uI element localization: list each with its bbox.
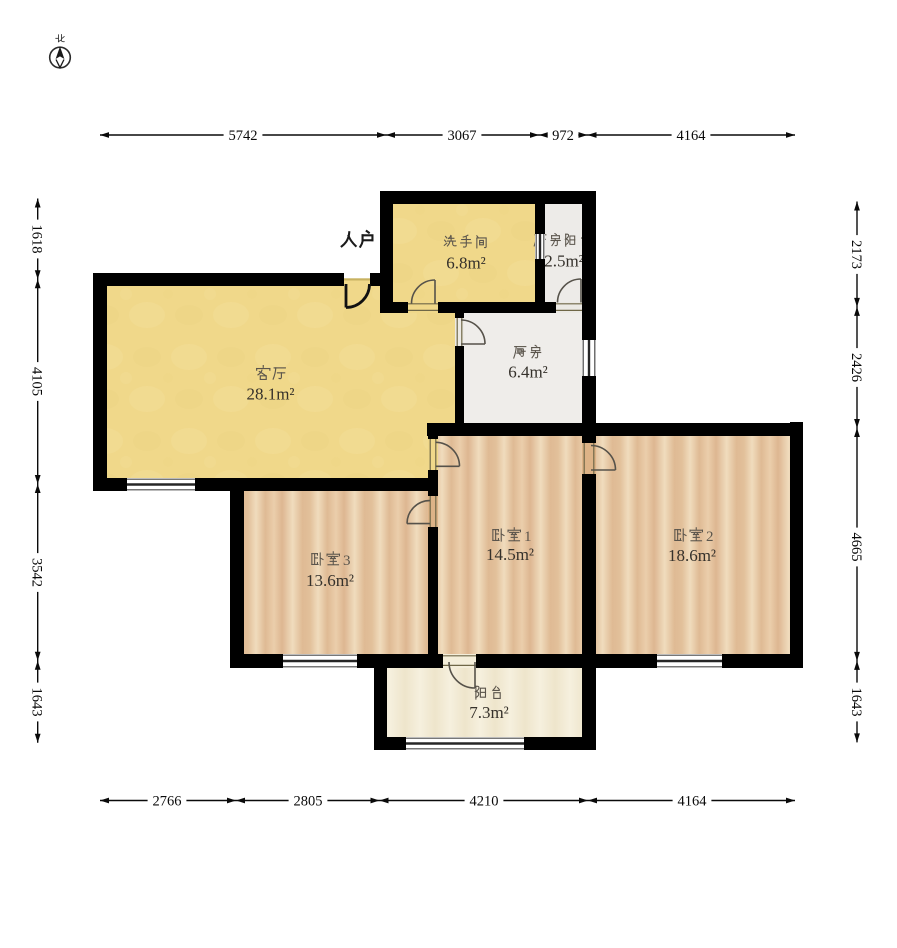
svg-text:14.5m²: 14.5m² <box>486 545 534 564</box>
svg-text:1643: 1643 <box>29 688 45 717</box>
svg-text:3067: 3067 <box>448 128 477 144</box>
svg-text:4210: 4210 <box>470 794 499 810</box>
svg-text:2173: 2173 <box>848 240 864 269</box>
svg-text:2.5m²: 2.5m² <box>544 252 584 271</box>
svg-text:2766: 2766 <box>153 794 182 810</box>
svg-text:2: 2 <box>706 529 714 545</box>
svg-text:4105: 4105 <box>29 367 45 396</box>
svg-text:3: 3 <box>343 553 351 569</box>
svg-text:1618: 1618 <box>29 225 45 254</box>
svg-text:6.8m²: 6.8m² <box>446 254 486 273</box>
svg-text:3542: 3542 <box>29 558 45 587</box>
svg-text:13.6m²: 13.6m² <box>306 571 354 590</box>
svg-text:4665: 4665 <box>848 533 864 562</box>
svg-text:4164: 4164 <box>678 794 708 810</box>
svg-text:7.3m²: 7.3m² <box>469 703 509 722</box>
svg-text:6.4m²: 6.4m² <box>508 363 548 382</box>
svg-text:4164: 4164 <box>677 128 707 144</box>
svg-text:1643: 1643 <box>848 688 864 717</box>
svg-text:1: 1 <box>524 529 532 545</box>
svg-text:28.1m²: 28.1m² <box>246 385 294 404</box>
svg-text:972: 972 <box>552 128 574 144</box>
svg-text:2805: 2805 <box>294 794 323 810</box>
svg-text:18.6m²: 18.6m² <box>668 546 716 565</box>
svg-text:2426: 2426 <box>848 353 864 382</box>
svg-text:5742: 5742 <box>229 128 258 144</box>
